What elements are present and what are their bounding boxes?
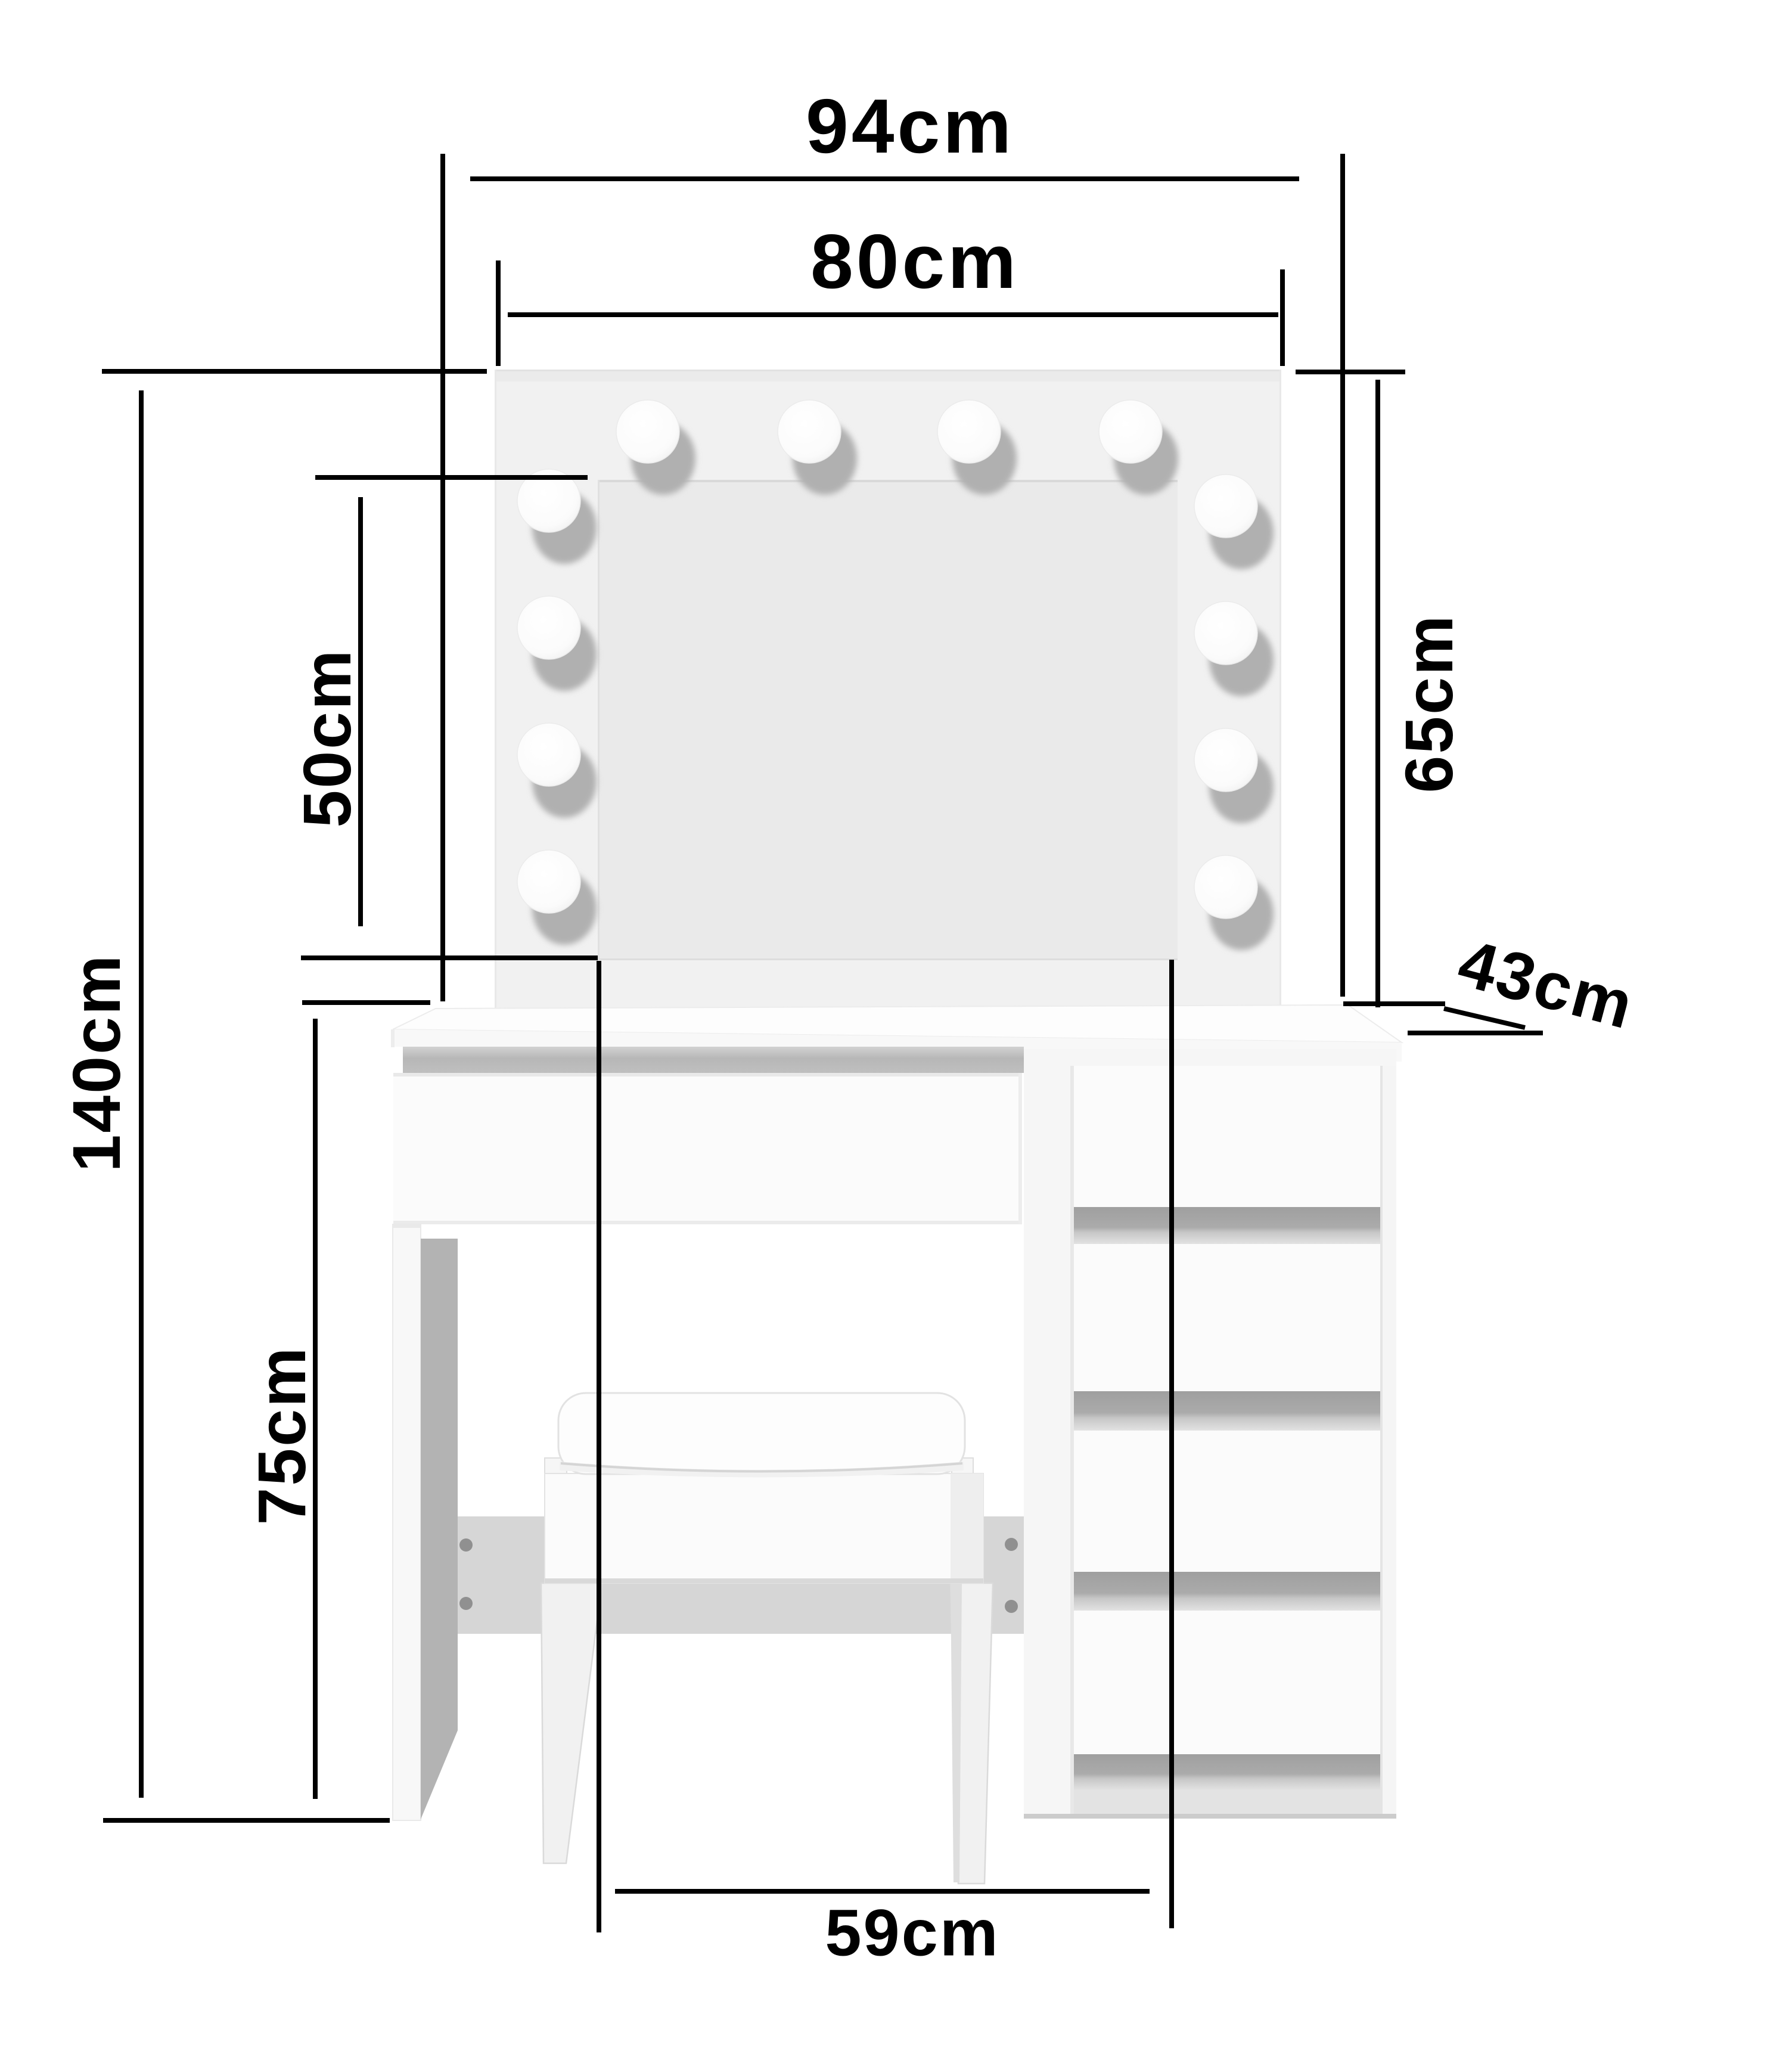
svg-text:94cm: 94cm [806, 83, 1014, 169]
svg-text:65cm: 65cm [1392, 613, 1467, 793]
svg-text:59cm: 59cm [825, 1897, 999, 1970]
svg-text:140cm: 140cm [59, 954, 134, 1172]
svg-text:50cm: 50cm [290, 648, 365, 827]
svg-text:80cm: 80cm [810, 219, 1019, 305]
svg-text:43cm: 43cm [1451, 925, 1642, 1043]
svg-text:75cm: 75cm [244, 1345, 319, 1525]
